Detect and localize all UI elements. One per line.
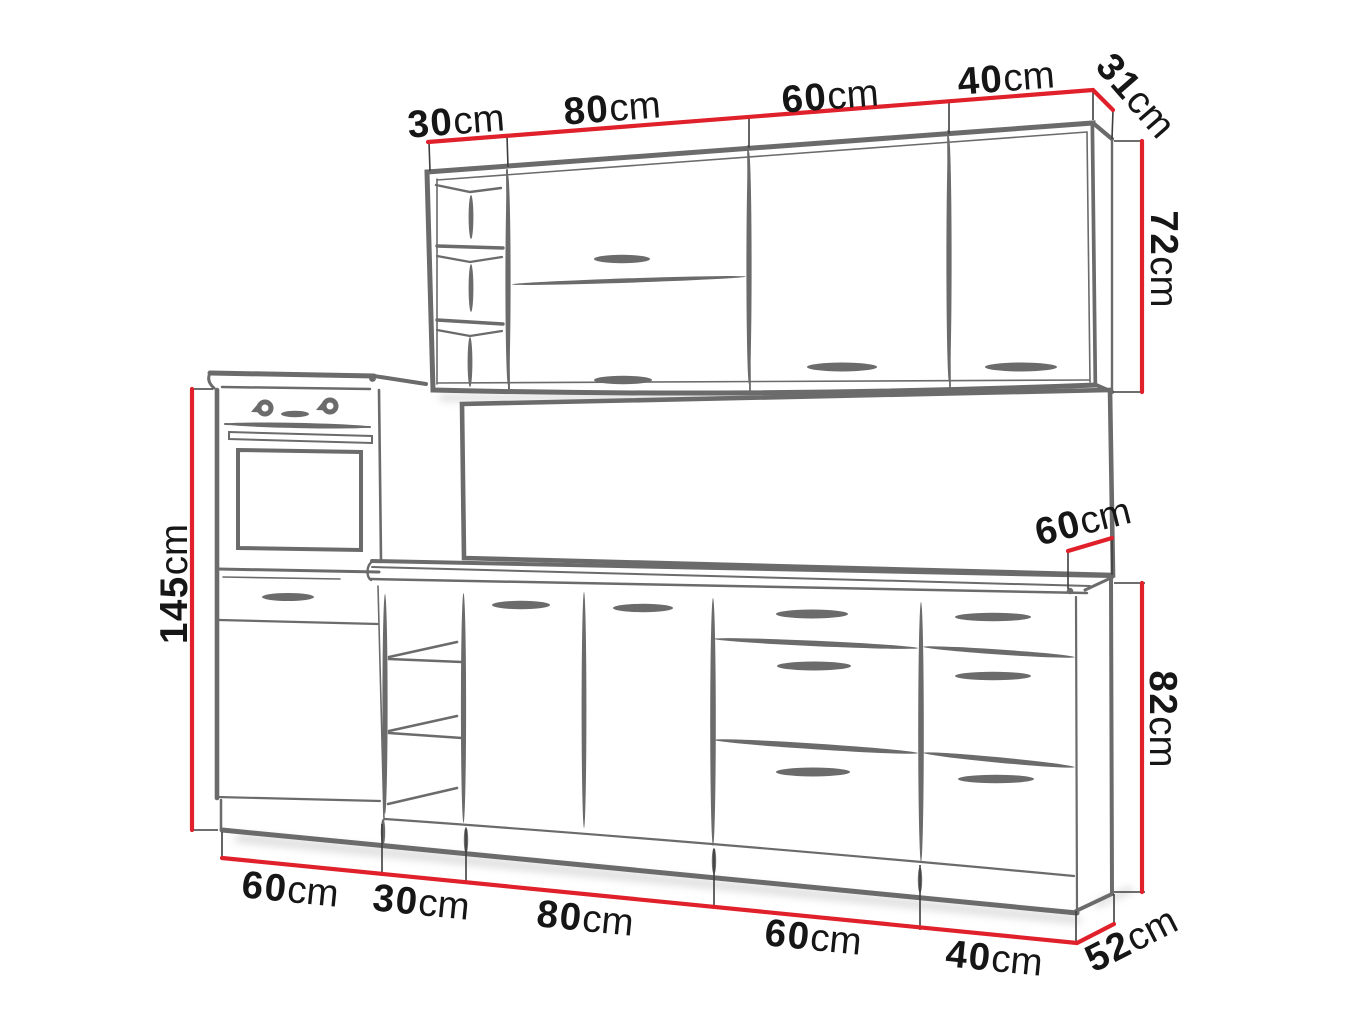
- svg-text:72cm: 72cm: [1142, 210, 1185, 307]
- svg-text:52cm: 52cm: [1078, 899, 1184, 981]
- svg-text:40cm: 40cm: [944, 932, 1045, 984]
- svg-text:80cm: 80cm: [535, 892, 636, 944]
- svg-text:80cm: 80cm: [562, 83, 662, 133]
- svg-text:30cm: 30cm: [406, 96, 506, 146]
- svg-text:60cm: 60cm: [780, 71, 880, 121]
- svg-text:40cm: 40cm: [956, 53, 1056, 103]
- svg-text:60cm: 60cm: [240, 863, 341, 915]
- svg-text:30cm: 30cm: [371, 876, 472, 928]
- svg-text:145cm: 145cm: [153, 524, 196, 644]
- svg-text:60cm: 60cm: [763, 911, 864, 963]
- svg-text:82cm: 82cm: [1141, 670, 1184, 767]
